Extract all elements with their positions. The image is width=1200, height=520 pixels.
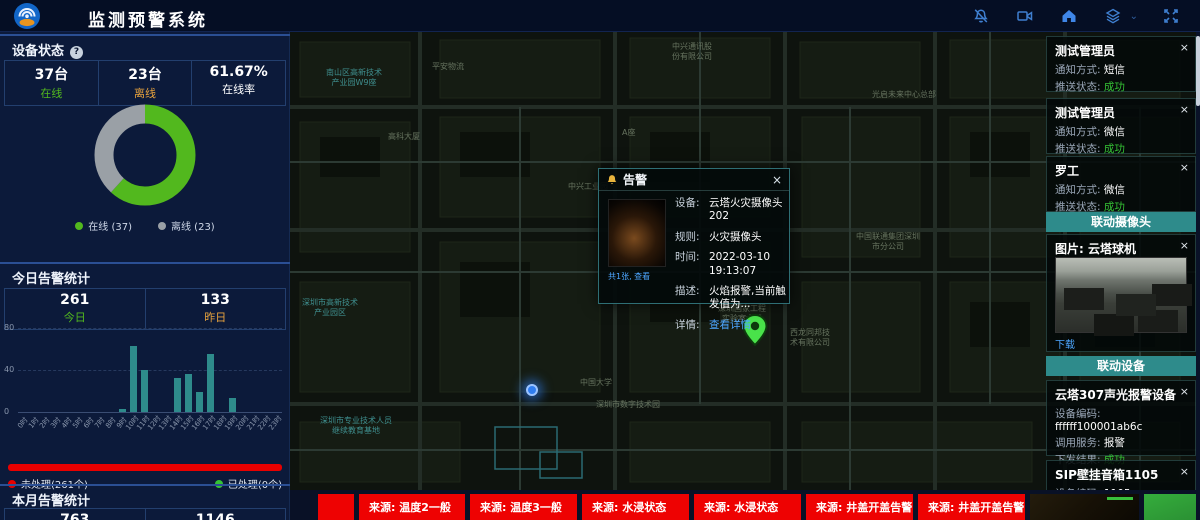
month-panel-border <box>0 484 290 486</box>
left-sidebar: 设备状态? 37台在线23台离线61.67%在线率 在线 (37)离线 (23)… <box>0 32 290 520</box>
legend-dot <box>75 222 83 230</box>
scrollbar-thumb[interactable] <box>1196 36 1200 106</box>
alarm-popup-header: 告警 × <box>599 169 789 191</box>
camera-snapshot-image[interactable] <box>1055 257 1187 333</box>
legend-label: 在线 (37) <box>88 218 132 233</box>
card-row-label: 推送状态: <box>1055 143 1104 155</box>
unhandled-progress-bar <box>8 464 282 471</box>
today-stat-value: 261 <box>5 292 145 308</box>
card-row-value: 报警 <box>1104 437 1125 449</box>
chart-gridline <box>18 370 282 371</box>
card-row: 通知方式: 微信 <box>1055 182 1187 197</box>
alarm-source-block[interactable]: 来源: 井盖开盖告警 <box>806 494 913 520</box>
card-row: 推送状态: 成功 <box>1055 79 1187 94</box>
notification-card: ×测试管理员通知方式: 短信推送状态: 成功 <box>1046 36 1196 92</box>
map-place-label: 光启未来中心总部 <box>872 90 936 100</box>
download-link[interactable]: 下载 <box>1055 336 1075 351</box>
map-place-label: 平安物流 <box>432 62 464 72</box>
card-row-value: ffffff100001ab6c <box>1055 421 1142 433</box>
fullscreen-icon[interactable] <box>1162 6 1182 26</box>
app-logo-icon <box>14 3 40 29</box>
card-row-label: 通知方式: <box>1055 64 1104 76</box>
bar-14时 <box>174 378 181 412</box>
linked-device-card: ×云塔307声光报警设备设备编码: ffffff100001ab6c调用服务: … <box>1046 380 1196 456</box>
device-online-donut-chart <box>88 98 202 212</box>
bar-19时 <box>229 398 236 412</box>
y-axis-tick: 0 <box>4 407 9 416</box>
card-row: 推送状态: 成功 <box>1055 141 1187 156</box>
alarm-source-block[interactable]: 来源: 温度3一般 <box>470 494 577 520</box>
alarm-popup: 告警 × 共1张, 查看 设备:云塔火灾摄像头202规则:火灾摄像头时间:202… <box>598 168 790 304</box>
card-row-value: 成功 <box>1104 143 1125 155</box>
popup-field-label: 规则: <box>675 231 709 244</box>
device-status-panel-title: 设备状态? <box>12 40 83 59</box>
linked-devices-header: 联动设备 <box>1046 356 1196 376</box>
today-panel-border <box>0 262 290 264</box>
bar-10时 <box>130 346 137 412</box>
today-stat-value: 133 <box>146 292 286 308</box>
green-camera-thumbnail[interactable] <box>1144 494 1200 520</box>
month-stat-cell: 1146 <box>146 509 286 520</box>
close-icon[interactable]: × <box>1180 239 1189 252</box>
card-title: 云塔307声光报警设备 <box>1055 386 1187 403</box>
popup-close-icon[interactable]: × <box>772 173 782 187</box>
info-icon[interactable]: ? <box>70 46 83 59</box>
map-place-label: 深圳市高新技术 产业园区 <box>302 298 358 319</box>
popup-field-value: 2022-03-10 19:13:07 <box>709 251 787 277</box>
card-row: 调用服务: 报警 <box>1055 435 1187 450</box>
bar-17时 <box>207 354 214 412</box>
card-row-label: 通知方式: <box>1055 184 1104 196</box>
card-row-value: 微信 <box>1104 184 1125 196</box>
camera-card-title: 图片: 云塔球机 <box>1055 240 1187 257</box>
map-place-label: 中兴通讯股 份有限公司 <box>672 42 712 63</box>
close-icon[interactable]: × <box>1180 41 1189 54</box>
today-alarms-panel-title: 今日告警统计 <box>12 268 90 287</box>
device-stat-label: 在线 <box>5 85 98 101</box>
alarm-ticker-bar: 来源: 温度2一般来源: 温度3一般来源: 水浸状态来源: 水浸状态来源: 井盖… <box>290 490 1200 520</box>
map-place-label: 中国大学 <box>580 378 612 388</box>
map-place-label: 深圳市数字技术园 <box>596 400 660 410</box>
device-stat: 37台在线 <box>5 61 99 105</box>
fire-alarm-snapshot[interactable] <box>608 199 666 267</box>
month-current-value: 763 <box>5 512 145 520</box>
alarm-popup-fields: 设备:云塔火灾摄像头202规则:火灾摄像头时间:2022-03-10 19:13… <box>675 197 787 340</box>
card-title: SIP壁挂音箱1105 <box>1055 466 1187 483</box>
close-icon[interactable]: × <box>1180 465 1189 478</box>
chart-gridline <box>18 412 282 413</box>
card-row-label: 通知方式: <box>1055 126 1104 138</box>
map-scrollbar[interactable] <box>1196 32 1200 520</box>
popup-field-row: 时间:2022-03-10 19:13:07 <box>675 251 787 277</box>
card-row-value: 微信 <box>1104 126 1125 138</box>
chart-gridline <box>18 328 282 329</box>
alarm-source-block[interactable]: 来源: 井盖开盖告警 <box>918 494 1025 520</box>
chevron-down-icon[interactable]: ⌄ <box>1130 11 1138 22</box>
device-stat: 61.67%在线率 <box>192 61 285 105</box>
month-alarms-panel-title: 本月告警统计 <box>12 490 90 509</box>
map-place-label: 南山区高新技术 产业园W9座 <box>326 68 382 89</box>
map-place-label: A座 <box>622 128 635 138</box>
dark-camera-thumbnail[interactable] <box>1030 494 1139 520</box>
page-title: 监测预警系统 <box>88 6 208 31</box>
donut-legend: 在线 (37)离线 (23) <box>0 218 290 233</box>
close-icon[interactable]: × <box>1180 103 1189 116</box>
popup-field-value: 火灾摄像头 <box>709 231 762 244</box>
notification-card: ×测试管理员通知方式: 微信推送状态: 成功 <box>1046 98 1196 154</box>
popup-field-row: 详情:查看详情 <box>675 319 787 332</box>
notifications-off-icon[interactable] <box>972 6 992 26</box>
card-row-label: 设备编码: <box>1055 408 1101 420</box>
camera-card: ×图片: 云塔球机下载 <box>1046 234 1196 352</box>
card-title: 罗工 <box>1055 162 1187 179</box>
card-row-value: 短信 <box>1104 64 1125 76</box>
map-place-label: 中国联通集团深圳 市分公司 <box>856 232 920 253</box>
bar-16时 <box>196 392 203 412</box>
notification-card: ×罗工通知方式: 微信推送状态: 成功 <box>1046 156 1196 212</box>
card-row-value: 成功 <box>1104 81 1125 93</box>
today-alarms-bar-chart: 804000时1时2时3时4时5时6时7时8时9时10时11时12时13时14时… <box>0 322 290 472</box>
month-stat-cell: 763 <box>5 509 146 520</box>
card-title: 测试管理员 <box>1055 104 1187 121</box>
card-row-label: 推送状态: <box>1055 81 1104 93</box>
alarm-source-block[interactable]: 来源: 温度2一般 <box>359 494 465 520</box>
home-icon[interactable] <box>1060 6 1080 26</box>
device-status-title-text: 设备状态 <box>12 44 64 59</box>
device-stat-label: 在线率 <box>192 81 285 97</box>
popup-field-value: 火焰报警,当前触发值为... <box>709 285 787 311</box>
video-camera-icon[interactable] <box>1016 6 1036 26</box>
card-row: 通知方式: 微信 <box>1055 124 1187 139</box>
device-location-dot[interactable] <box>526 384 538 396</box>
bar-11时 <box>141 370 148 412</box>
card-row: 设备编码: ffffff100001ab6c <box>1055 406 1187 433</box>
card-title: 测试管理员 <box>1055 42 1187 59</box>
device-stat-value: 23台 <box>99 64 192 84</box>
month-previous-value: 1146 <box>146 512 286 520</box>
month-alarms-stats: 763 1146 <box>4 508 286 520</box>
header-icon-toolbar: ⌄ <box>972 0 1182 32</box>
map-place-label: 西龙同邦技 术有限公司 <box>790 328 830 349</box>
device-stat-value: 37台 <box>5 64 98 84</box>
popup-field-label: 设备: <box>675 197 709 223</box>
layers-icon[interactable] <box>1104 6 1124 26</box>
device-stat-value: 61.67% <box>192 64 285 80</box>
snapshot-view-link[interactable]: 共1张, 查看 <box>608 271 668 282</box>
map-place-label: 深圳市专业技术人员 继续教育基地 <box>320 416 392 437</box>
popup-field-label: 描述: <box>675 285 709 311</box>
device-status-panel-border <box>0 34 290 36</box>
popup-field-value: 云塔火灾摄像头202 <box>709 197 787 223</box>
alarm-source-block[interactable]: 来源: 水浸状态 <box>582 494 689 520</box>
legend-label: 离线 (23) <box>171 218 215 233</box>
popup-field-row: 设备:云塔火灾摄像头202 <box>675 197 787 223</box>
card-row-label: 调用服务: <box>1055 437 1104 449</box>
view-details-link[interactable]: 查看详情 <box>709 319 751 332</box>
close-icon[interactable]: × <box>1180 385 1189 398</box>
alarm-bell-icon <box>606 174 618 186</box>
alarm-source-block[interactable]: 来源: 水浸状态 <box>694 494 801 520</box>
donut-legend-item: 离线 (23) <box>158 218 215 233</box>
popup-field-row: 规则:火灾摄像头 <box>675 231 787 244</box>
alarm-source-block[interactable] <box>318 494 354 520</box>
y-axis-tick: 80 <box>4 323 14 332</box>
donut-legend-item: 在线 (37) <box>75 218 132 233</box>
y-axis-tick: 40 <box>4 365 14 374</box>
legend-dot <box>158 222 166 230</box>
bar-15时 <box>185 374 192 412</box>
popup-field-label: 详情: <box>675 319 709 332</box>
card-row: 通知方式: 短信 <box>1055 62 1187 77</box>
top-header: 监测预警系统 ⌄ <box>0 0 1200 32</box>
map-place-label: 高科大厦 <box>388 132 420 142</box>
bar-9时 <box>119 409 126 412</box>
close-icon[interactable]: × <box>1180 161 1189 174</box>
alarm-popup-title: 告警 <box>623 171 647 188</box>
linked-cameras-header: 联动摄像头 <box>1046 212 1196 232</box>
popup-field-row: 描述:火焰报警,当前触发值为... <box>675 285 787 311</box>
popup-field-label: 时间: <box>675 251 709 277</box>
